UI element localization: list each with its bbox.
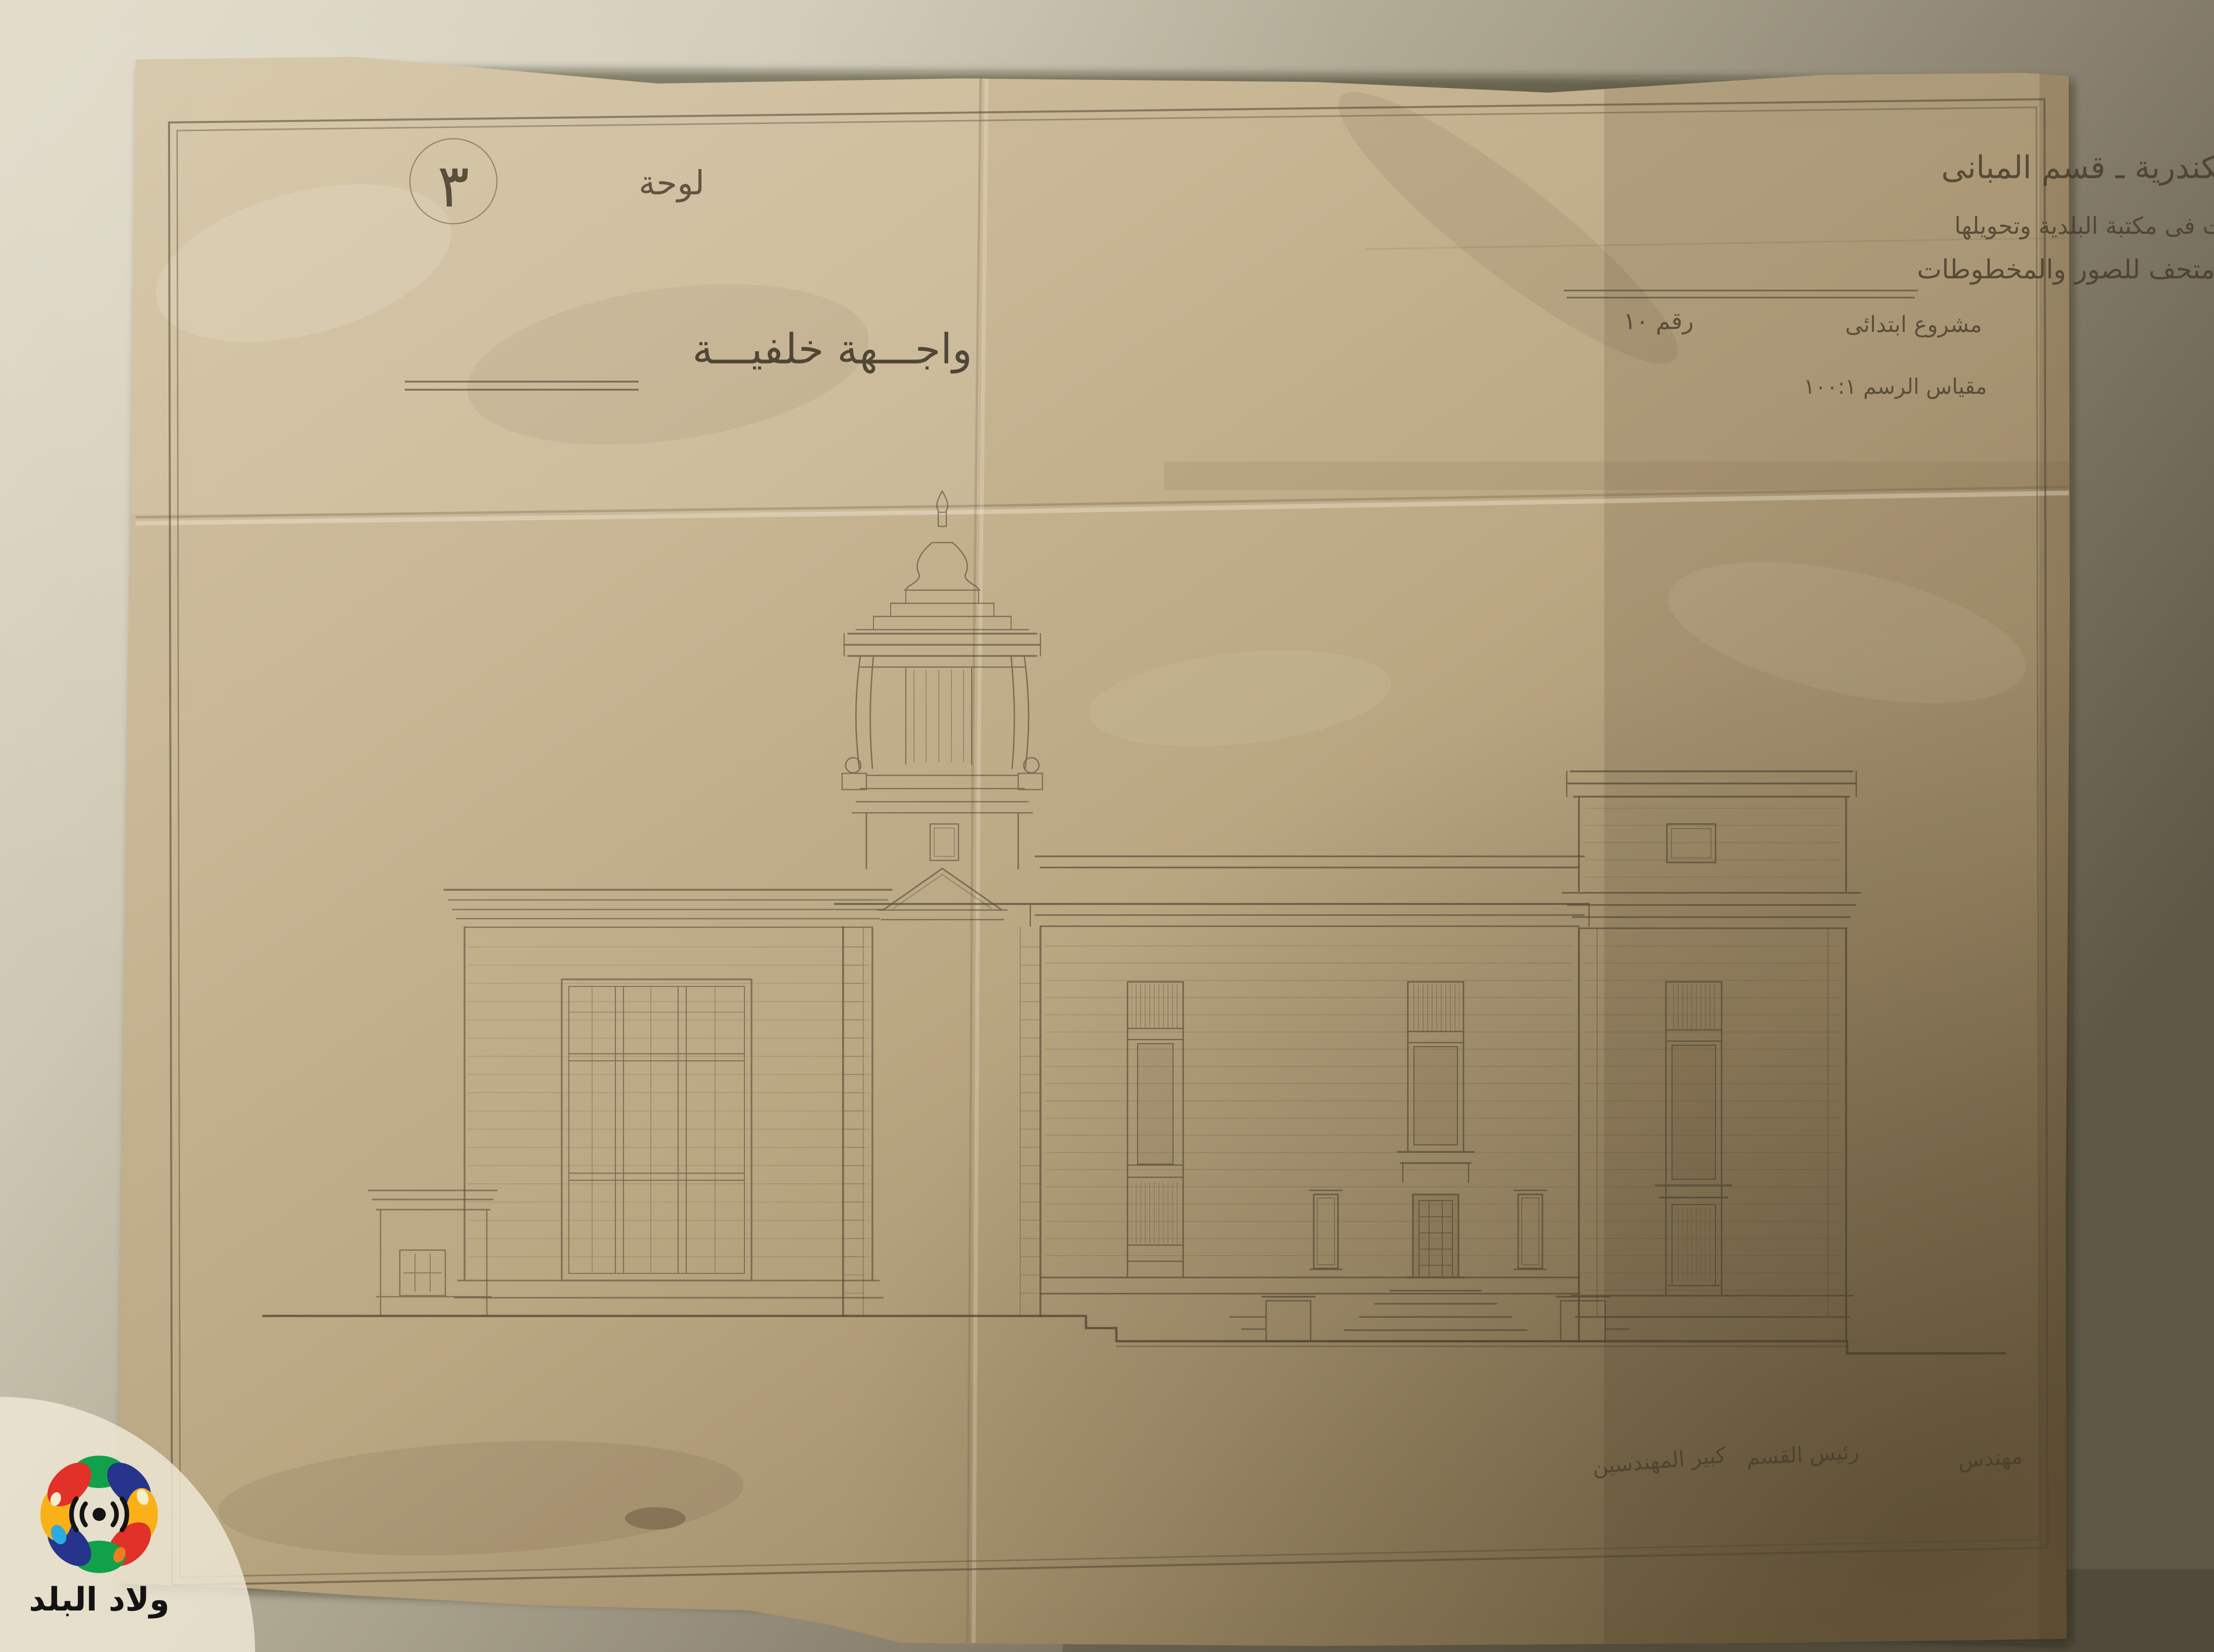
right-pavilion bbox=[1563, 771, 1860, 1341]
signature-engineer: مهندس bbox=[1957, 1443, 2023, 1473]
title-stage: مشروع ابتدائى bbox=[1845, 312, 1982, 338]
entrance-door bbox=[1407, 1194, 1465, 1277]
paper-sheet: بلدية الاسكندرية ـ قسم المبانى مشروع تعد… bbox=[116, 56, 2214, 1647]
archival-photo-architectural-drawing: بلدية الاسكندرية ـ قسم المبانى مشروع تعد… bbox=[0, 0, 2214, 1652]
title-department: بلدية الاسكندرية ـ قسم المبانى bbox=[1941, 149, 2214, 186]
left-wing bbox=[444, 890, 892, 1298]
title-number: رقم ١٠ bbox=[1623, 307, 1694, 335]
title-project-line1: مشروع تعديلات فى مكتبة البلدية وتحويلها bbox=[1954, 212, 2214, 240]
title-project-line2: الى متحف للصور والمخطوطات bbox=[1917, 255, 2214, 285]
plate-number: ٣ bbox=[437, 151, 469, 221]
plate-word: لوحة bbox=[639, 163, 704, 202]
view-title: واجـــهة خلفيـــة bbox=[692, 325, 972, 374]
watermark-text: ولاد البلد bbox=[29, 1581, 170, 1619]
title-scale: مقياس الرسم ١٠٠:١ bbox=[1804, 374, 1987, 399]
